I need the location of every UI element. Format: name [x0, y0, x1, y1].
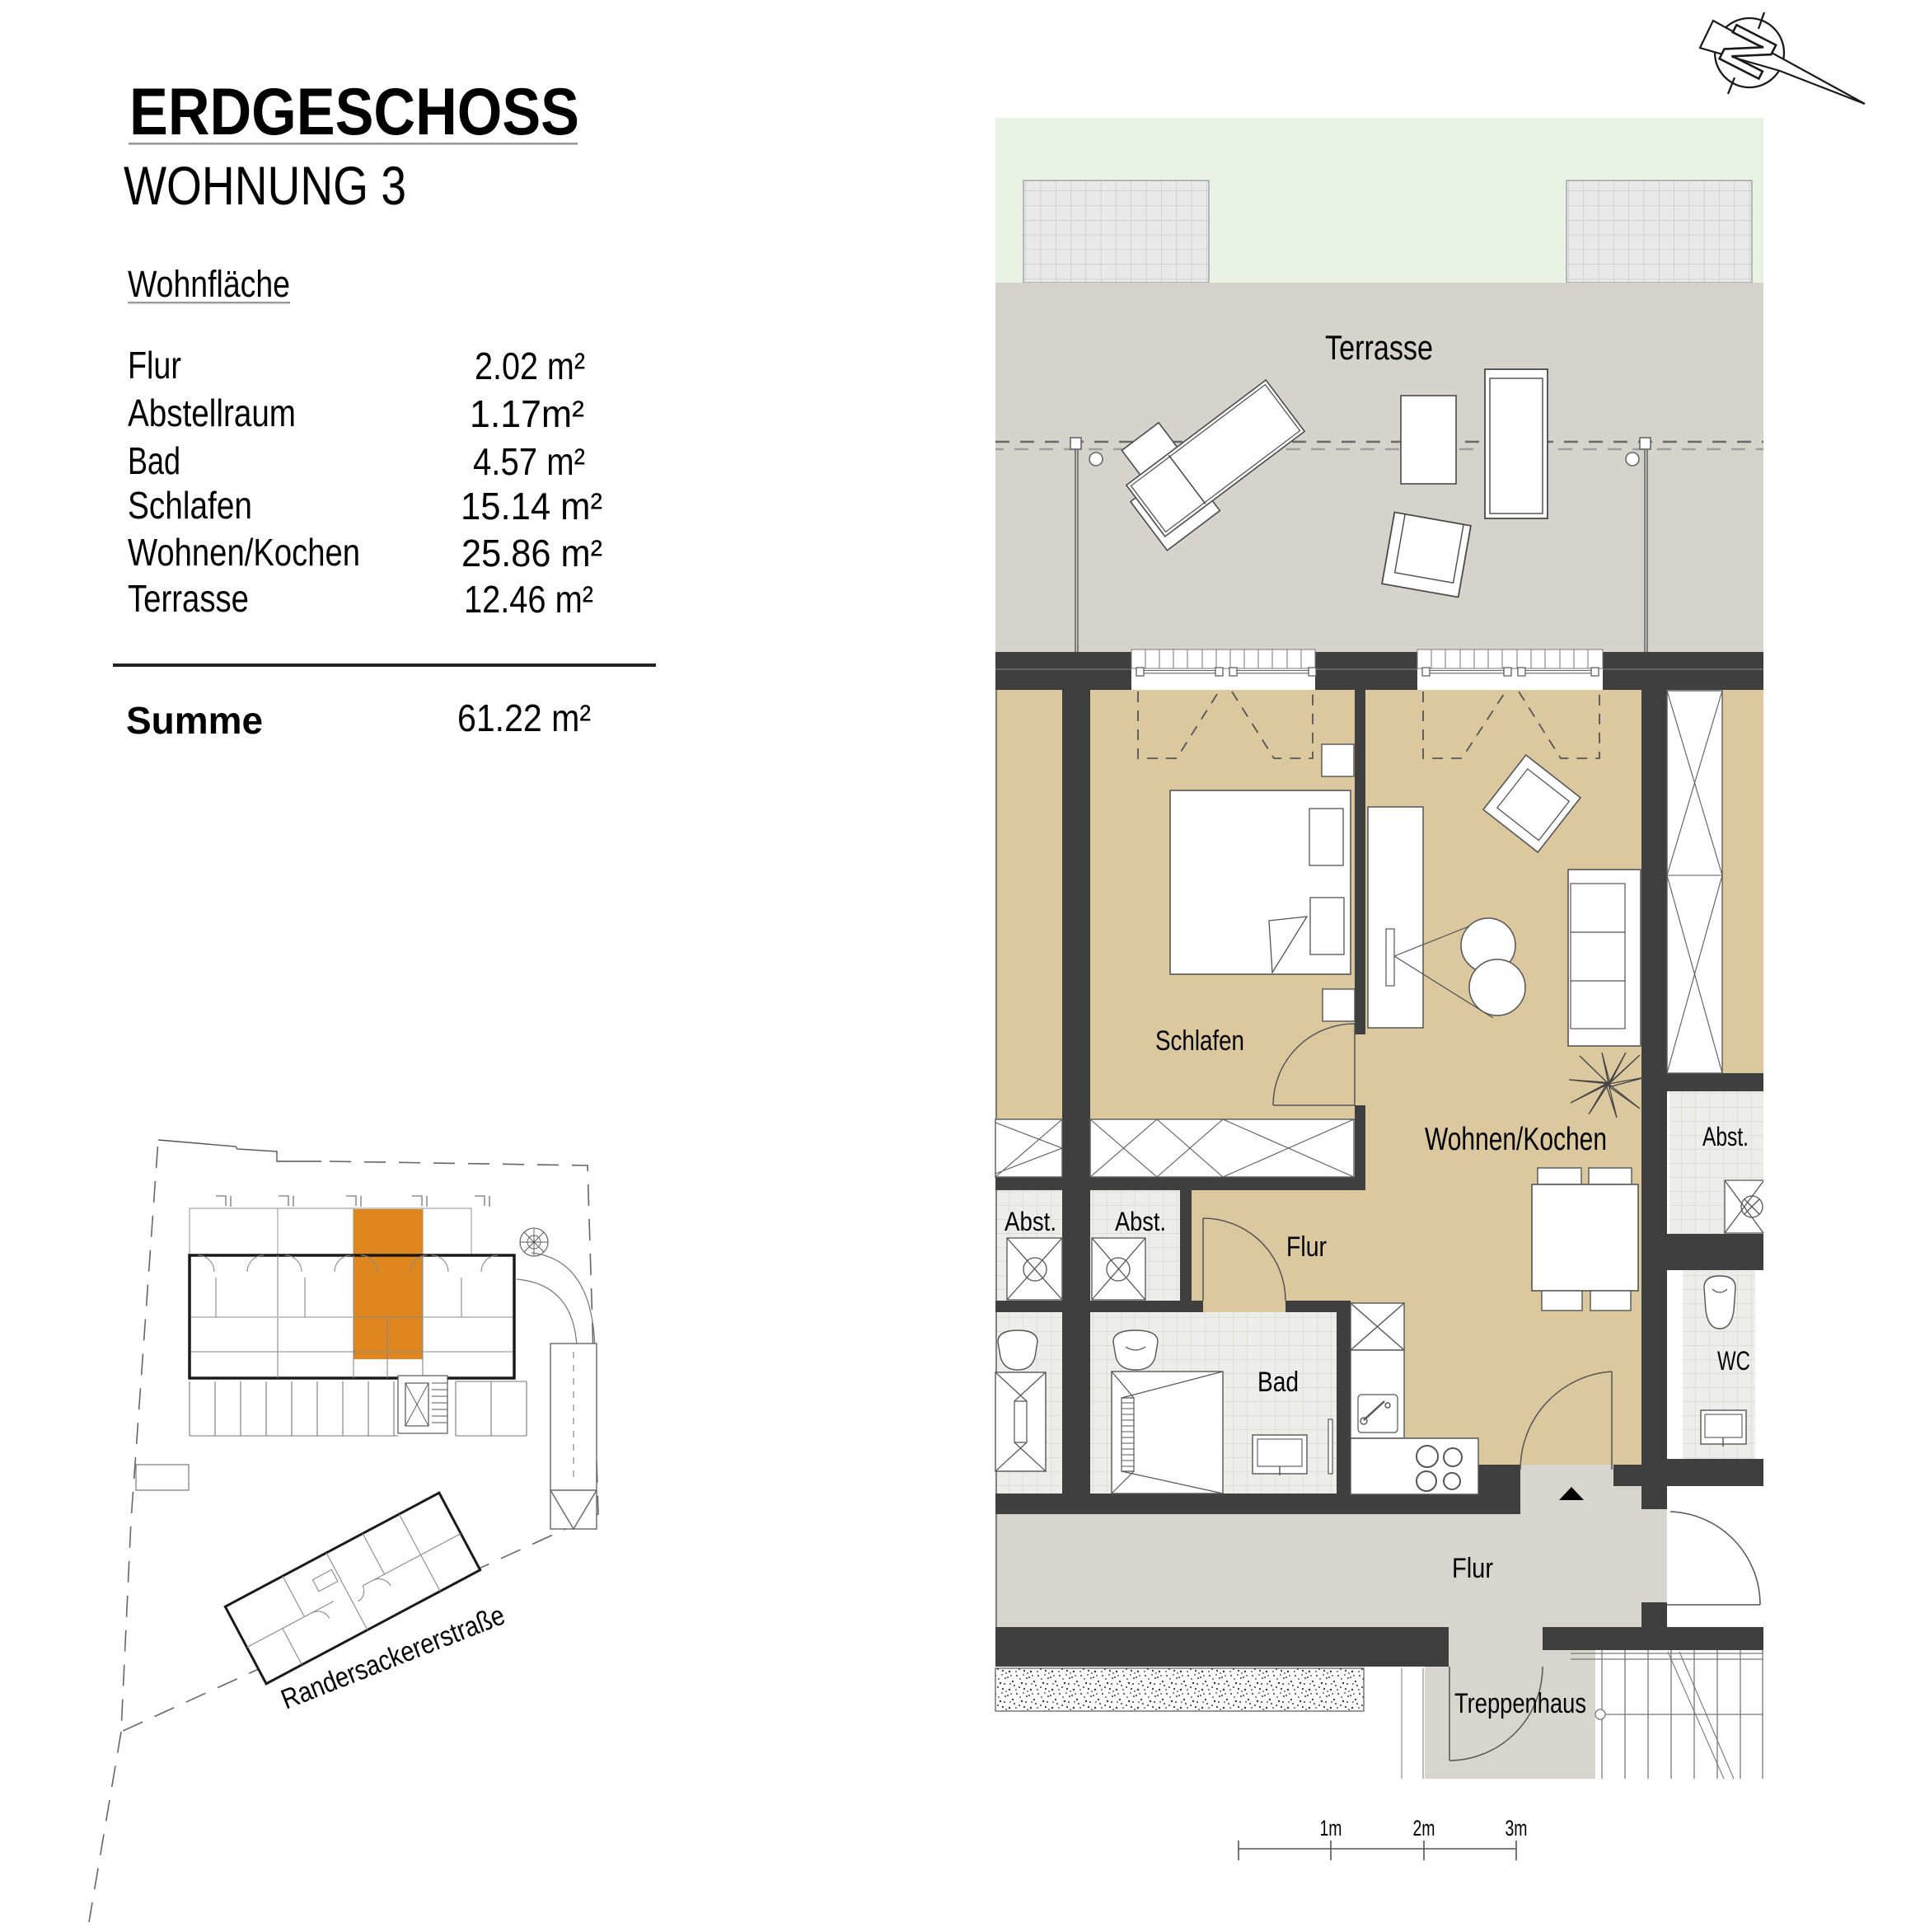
svg-text:1m: 1m: [1320, 1816, 1342, 1841]
svg-text:Abst.: Abst.: [1004, 1207, 1056, 1236]
svg-text:15.14 m²: 15.14 m²: [461, 485, 602, 528]
svg-text:Bad: Bad: [128, 439, 180, 482]
svg-text:Schlafen: Schlafen: [128, 484, 252, 527]
svg-text:25.86 m²: 25.86 m²: [461, 532, 602, 574]
svg-text:Flur: Flur: [1286, 1231, 1327, 1263]
svg-text:ERDGESCHOSS: ERDGESCHOSS: [129, 75, 579, 149]
svg-text:Wohnen/Kochen: Wohnen/Kochen: [128, 531, 360, 574]
svg-text:Abst.: Abst.: [1115, 1207, 1166, 1236]
svg-text:Flur: Flur: [1452, 1553, 1493, 1584]
svg-text:WOHNUNG 3: WOHNUNG 3: [124, 155, 406, 216]
svg-text:Abst.: Abst.: [1702, 1122, 1749, 1151]
svg-text:4.57 m²: 4.57 m²: [473, 440, 585, 483]
svg-text:3m: 3m: [1506, 1816, 1528, 1841]
svg-text:2m: 2m: [1413, 1816, 1435, 1841]
svg-text:Terrasse: Terrasse: [128, 577, 249, 620]
svg-text:Summe: Summe: [126, 699, 263, 742]
svg-text:Abstellraum: Abstellraum: [128, 392, 296, 434]
svg-text:Schlafen: Schlafen: [1155, 1025, 1244, 1057]
svg-text:1.17m²: 1.17m²: [470, 392, 584, 435]
svg-text:Flur: Flur: [128, 344, 181, 387]
svg-text:Bad: Bad: [1257, 1367, 1299, 1398]
svg-text:61.22 m²: 61.22 m²: [457, 696, 591, 739]
svg-text:Treppenhaus: Treppenhaus: [1454, 1688, 1586, 1719]
svg-text:2.02 m²: 2.02 m²: [475, 345, 585, 387]
svg-text:Wohnen/Kochen: Wohnen/Kochen: [1425, 1122, 1607, 1157]
svg-text:Terrasse: Terrasse: [1325, 328, 1433, 367]
svg-text:12.46 m²: 12.46 m²: [464, 578, 593, 621]
svg-text:WC: WC: [1717, 1346, 1750, 1376]
svg-text:Wohnfläche: Wohnfläche: [128, 263, 290, 305]
